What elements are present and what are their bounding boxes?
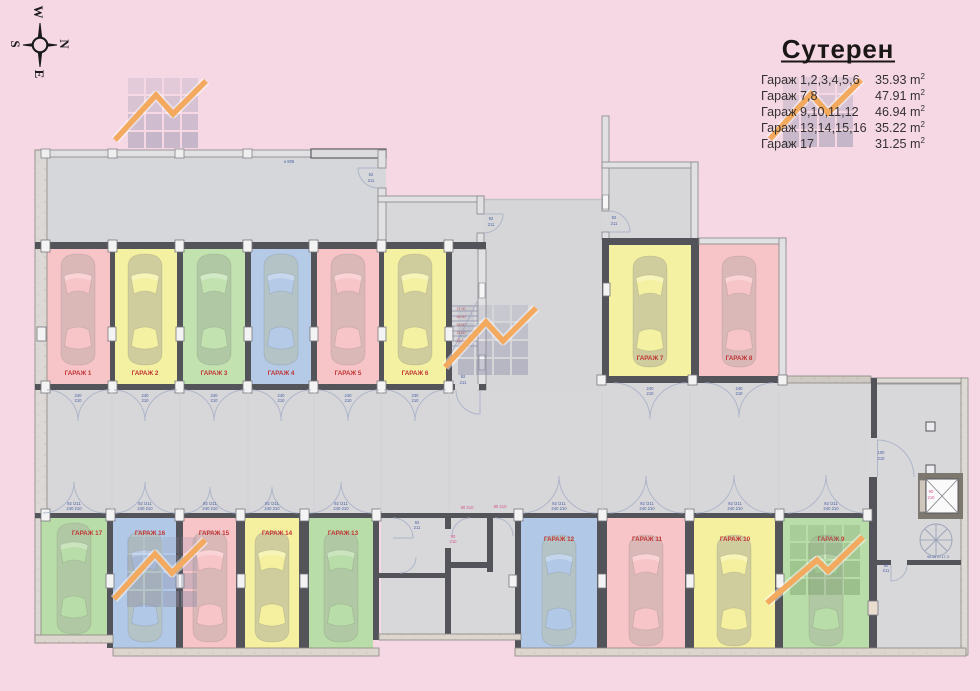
svg-text:210: 210 bbox=[928, 495, 936, 500]
svg-text:240 210: 240 210 bbox=[727, 506, 743, 511]
svg-text:210: 210 bbox=[345, 398, 353, 403]
svg-text:ГАРАЖ 1: ГАРАЖ 1 bbox=[65, 370, 92, 377]
svg-text:90 210: 90 210 bbox=[494, 504, 507, 509]
svg-text:31.25 m2: 31.25 m2 bbox=[875, 136, 926, 151]
svg-text:н 805: н 805 bbox=[284, 159, 295, 164]
svg-text:211: 211 bbox=[488, 222, 495, 227]
svg-text:210: 210 bbox=[412, 398, 420, 403]
svg-text:210: 210 bbox=[647, 391, 655, 396]
svg-text:ГАРАЖ 5: ГАРАЖ 5 bbox=[335, 370, 362, 377]
svg-text:Гараж 9,10,11,12: Гараж 9,10,11,12 bbox=[761, 105, 859, 119]
svg-text:Гараж 7,8: Гараж 7,8 bbox=[761, 89, 818, 103]
svg-text:211: 211 bbox=[611, 221, 618, 226]
svg-text:E: E bbox=[32, 70, 47, 79]
svg-text:211: 211 bbox=[414, 525, 421, 530]
svg-text:ГАРАЖ 3: ГАРАЖ 3 bbox=[201, 370, 228, 377]
svg-text:ГАРАЖ 15: ГАРАЖ 15 bbox=[199, 530, 230, 537]
svg-text:92: 92 bbox=[369, 172, 374, 177]
svg-text:Гараж 13,14,15,16: Гараж 13,14,15,16 bbox=[761, 121, 867, 135]
svg-text:Гараж 17: Гараж 17 bbox=[761, 137, 814, 151]
svg-text:ГАРАЖ 13: ГАРАЖ 13 bbox=[328, 530, 359, 537]
svg-text:ГАРАЖ 14: ГАРАЖ 14 bbox=[262, 530, 293, 537]
svg-text:ГАРАЖ 16: ГАРАЖ 16 bbox=[135, 530, 166, 537]
svg-text:96 кв ст.17.3: 96 кв ст.17.3 bbox=[927, 555, 949, 559]
svg-text:Сутерен: Сутерен bbox=[782, 34, 894, 64]
svg-text:211: 211 bbox=[883, 568, 890, 573]
svg-text:92: 92 bbox=[612, 215, 617, 220]
svg-text:S: S bbox=[8, 40, 23, 47]
svg-text:ГАРАЖ 7: ГАРАЖ 7 bbox=[637, 355, 664, 362]
svg-text:ГАРАЖ 6: ГАРАЖ 6 bbox=[402, 370, 429, 377]
svg-text:W: W bbox=[31, 6, 46, 19]
svg-text:210: 210 bbox=[450, 539, 458, 544]
svg-text:240 210: 240 210 bbox=[66, 506, 82, 511]
svg-text:240 210: 240 210 bbox=[823, 506, 839, 511]
svg-text:240 210: 240 210 bbox=[333, 506, 349, 511]
svg-text:90 210: 90 210 bbox=[461, 505, 474, 510]
svg-text:240 210: 240 210 bbox=[137, 506, 153, 511]
svg-text:N: N bbox=[57, 39, 72, 49]
svg-text:92: 92 bbox=[489, 216, 494, 221]
svg-text:210: 210 bbox=[75, 398, 83, 403]
svg-text:210: 210 bbox=[736, 391, 744, 396]
svg-text:ГАРАЖ 4: ГАРАЖ 4 bbox=[268, 370, 295, 377]
svg-text:210: 210 bbox=[211, 398, 219, 403]
svg-text:35.22 m2: 35.22 m2 bbox=[875, 120, 926, 135]
svg-text:90: 90 bbox=[929, 489, 934, 494]
svg-text:210: 210 bbox=[878, 456, 886, 461]
svg-text:ГАРАЖ 17: ГАРАЖ 17 bbox=[72, 530, 103, 537]
svg-text:240 210: 240 210 bbox=[264, 506, 280, 511]
svg-text:240 210: 240 210 bbox=[639, 506, 655, 511]
svg-text:211: 211 bbox=[368, 178, 375, 183]
svg-text:240 210: 240 210 bbox=[551, 506, 567, 511]
svg-text:210: 210 bbox=[142, 398, 150, 403]
svg-text:47.91 m2: 47.91 m2 bbox=[875, 88, 926, 103]
svg-text:240 210: 240 210 bbox=[202, 506, 218, 511]
svg-text:100: 100 bbox=[878, 450, 886, 455]
svg-text:ГАРАЖ 12: ГАРАЖ 12 bbox=[544, 536, 575, 543]
svg-text:46.94 m2: 46.94 m2 bbox=[875, 104, 926, 119]
svg-text:210: 210 bbox=[278, 398, 286, 403]
svg-text:ГАРАЖ 8: ГАРАЖ 8 bbox=[726, 355, 753, 362]
svg-text:ГАРАЖ 10: ГАРАЖ 10 bbox=[720, 536, 751, 543]
svg-text:211: 211 bbox=[460, 380, 467, 385]
svg-text:35.93 m2: 35.93 m2 bbox=[875, 72, 926, 87]
svg-text:ГАРАЖ 2: ГАРАЖ 2 bbox=[132, 370, 159, 377]
svg-text:ГАРАЖ 11: ГАРАЖ 11 bbox=[632, 536, 663, 543]
svg-text:Гараж 1,2,3,4,5,6: Гараж 1,2,3,4,5,6 bbox=[761, 73, 860, 87]
